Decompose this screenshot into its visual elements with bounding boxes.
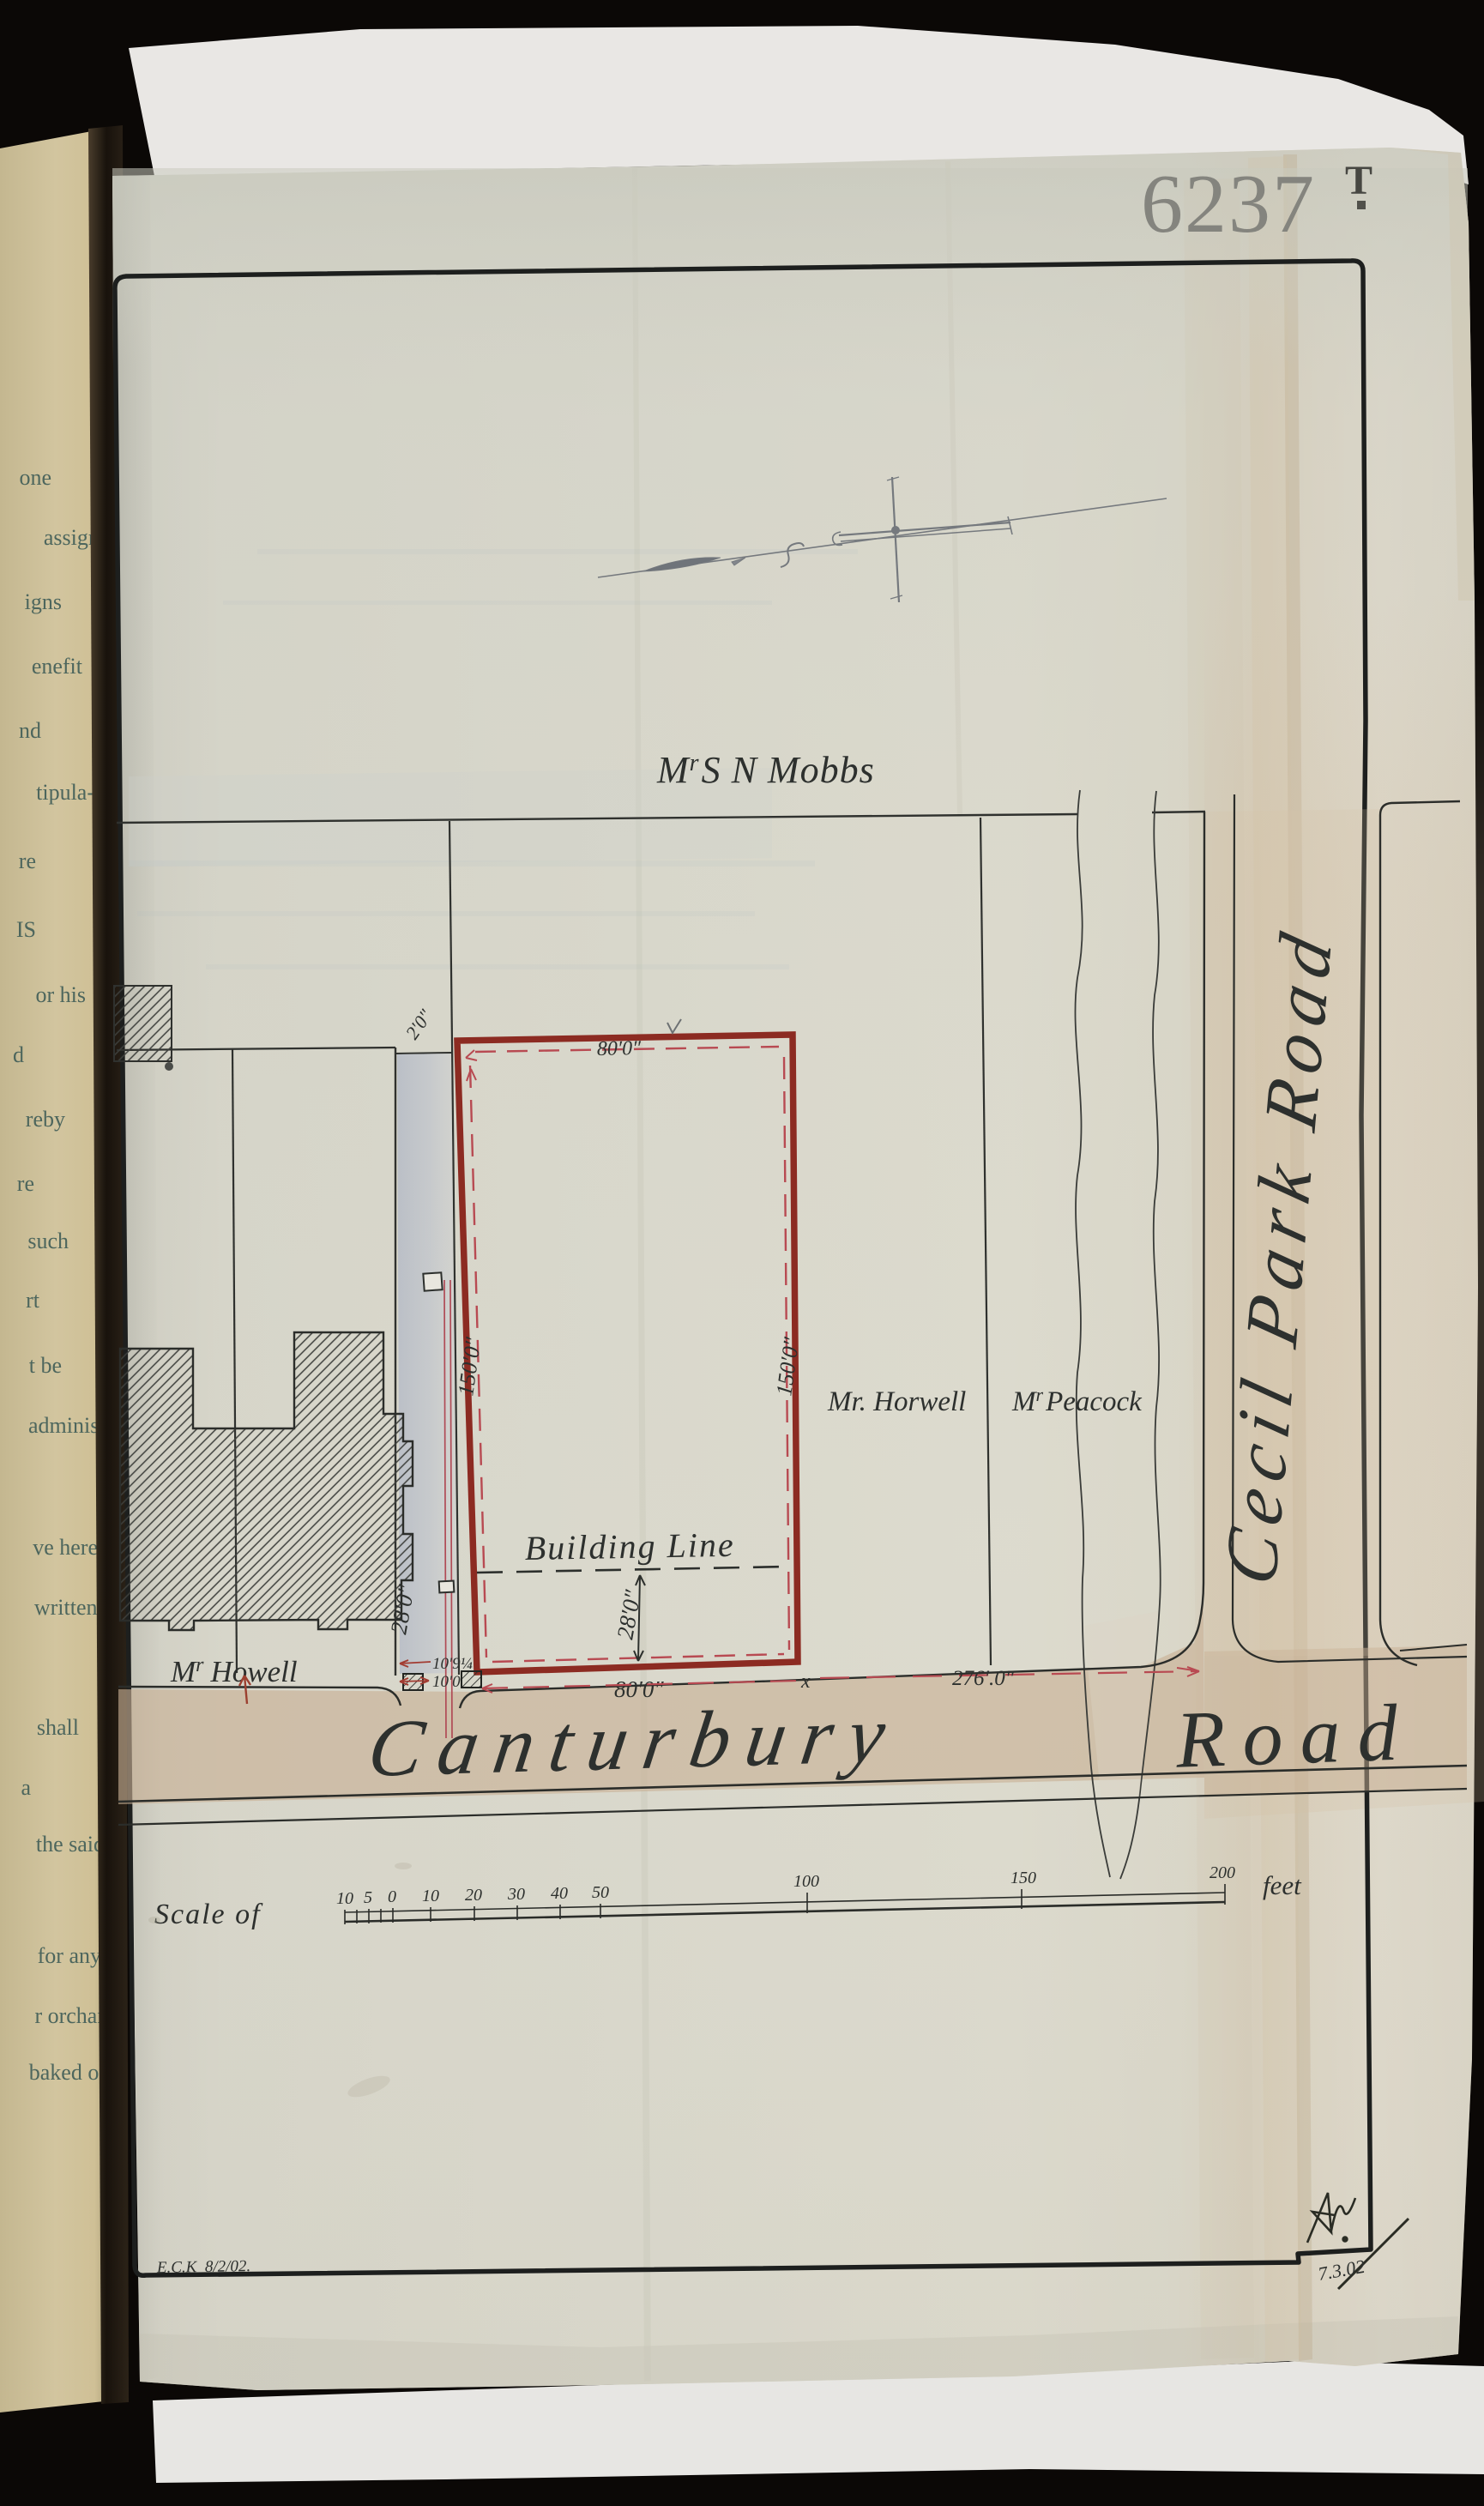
svg-text:Road: Road	[1173, 1688, 1416, 1785]
svg-text:a: a	[21, 1775, 31, 1800]
svg-text:rt: rt	[26, 1288, 40, 1313]
svg-text:the said: the said	[36, 1832, 105, 1857]
svg-text:x: x	[800, 1670, 811, 1693]
svg-text:200: 200	[1210, 1863, 1235, 1882]
svg-text:adminis-: adminis-	[28, 1413, 106, 1438]
svg-text:reby: reby	[26, 1107, 65, 1132]
svg-text:10′9¼: 10′9¼	[432, 1655, 473, 1673]
svg-text:80′0″: 80′0″	[597, 1037, 642, 1060]
svg-text:150: 150	[1010, 1869, 1036, 1887]
svg-text:t be: t be	[29, 1353, 62, 1378]
svg-text:tipula-: tipula-	[36, 780, 94, 805]
svg-text:one: one	[19, 465, 51, 490]
svg-text:ve here: ve here	[33, 1535, 98, 1560]
svg-text:MrHowell: MrHowell	[170, 1654, 298, 1688]
svg-text:shall: shall	[37, 1715, 79, 1740]
svg-text:50: 50	[592, 1883, 609, 1902]
svg-text:80′0″: 80′0″	[614, 1676, 664, 1702]
svg-text:0: 0	[388, 1887, 396, 1906]
svg-text:baked or: baked or	[29, 2060, 107, 2085]
svg-text:MrS N Mobbs: MrS N Mobbs	[656, 749, 875, 791]
svg-text:Scale of: Scale of	[154, 1899, 263, 1930]
svg-text:enefit: enefit	[32, 654, 83, 679]
svg-text:20: 20	[465, 1886, 482, 1905]
svg-text:r orchar: r orchar	[34, 2003, 105, 2028]
svg-text:E.C.K 8/2/02.: E.C.K 8/2/02.	[156, 2257, 251, 2277]
svg-text:10: 10	[422, 1887, 439, 1905]
svg-text:T: T	[1345, 158, 1372, 203]
svg-text:or his: or his	[36, 982, 87, 1007]
svg-text:10′0: 10′0	[432, 1673, 461, 1691]
svg-text:re: re	[19, 848, 36, 873]
svg-text:MrPeacock: MrPeacock	[1011, 1384, 1143, 1417]
svg-text:for any: for any	[38, 1943, 101, 1968]
svg-text:40: 40	[551, 1884, 568, 1903]
svg-text:IS: IS	[16, 917, 36, 942]
svg-text:Mr. Horwell: Mr. Horwell	[827, 1386, 966, 1417]
svg-text:nd: nd	[19, 718, 41, 743]
svg-text:276′.0″: 276′.0″	[952, 1667, 1015, 1690]
svg-text:Building Line: Building Line	[524, 1525, 735, 1567]
svg-text:re: re	[17, 1171, 34, 1196]
svg-text:written.: written.	[34, 1595, 103, 1620]
svg-text:5: 5	[364, 1888, 372, 1907]
svg-text:Canturbury: Canturbury	[363, 1690, 907, 1794]
svg-text:100: 100	[793, 1872, 819, 1891]
svg-text:10: 10	[336, 1889, 353, 1908]
svg-text:6237: 6237	[1141, 158, 1316, 251]
svg-text:feet: feet	[1263, 1870, 1302, 1900]
svg-text:igns: igns	[25, 589, 62, 614]
svg-text:30: 30	[507, 1885, 525, 1904]
svg-text:such: such	[27, 1229, 69, 1253]
svg-text:d: d	[13, 1042, 24, 1067]
